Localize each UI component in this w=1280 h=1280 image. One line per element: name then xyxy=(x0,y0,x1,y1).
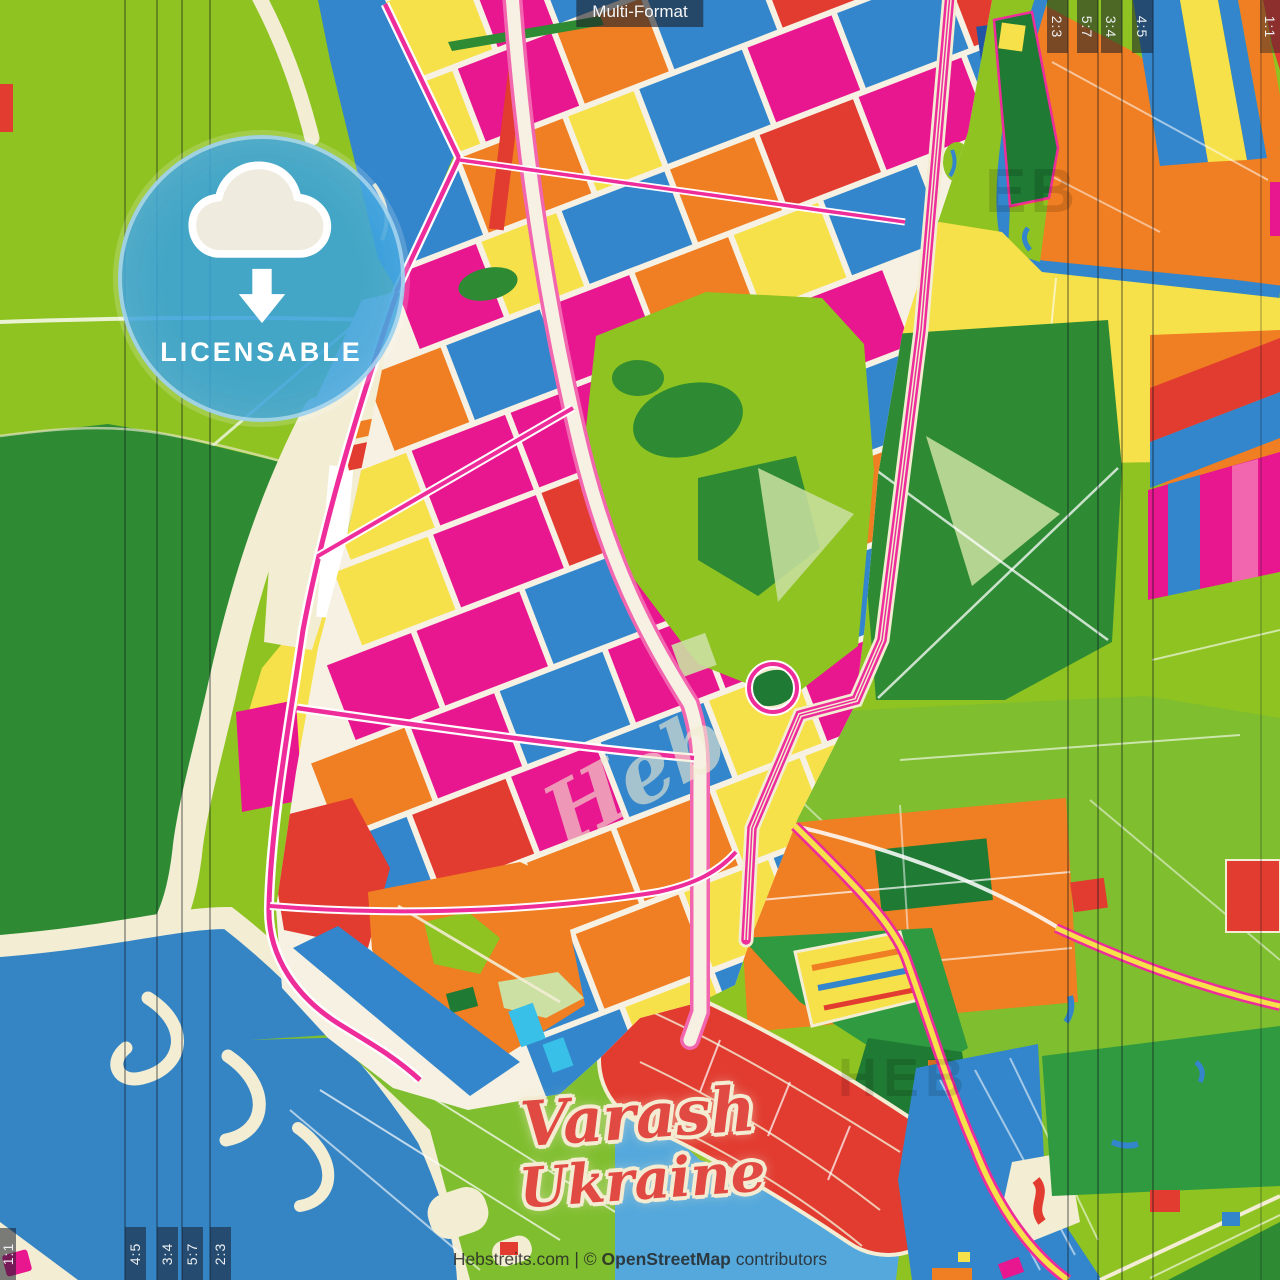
licensable-label: LICENSABLE xyxy=(160,337,363,368)
ratio-tab-label: 1:1 xyxy=(1262,15,1278,37)
ratio-tab-label: 3:4 xyxy=(1104,15,1120,37)
ratio-tab-label: 4:5 xyxy=(128,1242,144,1264)
ratio-tab-4-5-top: 4:5 xyxy=(1132,0,1153,53)
format-badge-label: Multi-Format xyxy=(592,2,687,21)
map-poster-preview: HebEBHEB Multi-Format 2:3 5:7 3:4 4:5 1:… xyxy=(0,0,1280,1280)
download-arrow-icon xyxy=(231,267,293,327)
format-badge: Multi-Format xyxy=(576,0,703,27)
ratio-tab-3-4-top: 3:4 xyxy=(1101,0,1122,53)
footer-site-text: Hebstreits.com | © xyxy=(453,1249,602,1269)
svg-text:HEB: HEB xyxy=(838,1048,970,1108)
svg-text:EB: EB xyxy=(985,157,1079,226)
map-title-country: Ukraine xyxy=(517,1143,767,1215)
ratio-tab-label: 2:3 xyxy=(1050,15,1066,37)
cloud-download-icon xyxy=(187,161,337,265)
licensable-badge: LICENSABLE xyxy=(118,135,405,422)
ratio-tab-3-4-bottom: 3:4 xyxy=(157,1227,178,1280)
footer-osm-text: OpenStreetMap xyxy=(602,1249,731,1269)
ratio-tab-1-1-left: 1:1 xyxy=(0,1228,16,1280)
ratio-tab-label: 3:4 xyxy=(160,1242,176,1264)
ratio-tab-label: 2:3 xyxy=(213,1242,229,1264)
map-title: Varash Ukraine xyxy=(513,1078,767,1216)
ratio-tab-5-7-bottom: 5:7 xyxy=(182,1227,203,1280)
footer-contributors-text: contributors xyxy=(731,1249,827,1269)
ratio-tab-2-3-top: 2:3 xyxy=(1047,0,1068,53)
ratio-tab-1-1-right: 1:1 xyxy=(1260,0,1280,53)
ratio-tab-5-7-top: 5:7 xyxy=(1077,0,1098,53)
ratio-tab-label: 4:5 xyxy=(1135,15,1151,37)
ratio-tab-label: 5:7 xyxy=(1080,15,1096,37)
ratio-tab-2-3-bottom: 2:3 xyxy=(210,1227,231,1280)
ratio-tab-label: 5:7 xyxy=(185,1242,201,1264)
ratio-tab-4-5-bottom: 4:5 xyxy=(125,1227,146,1280)
ratio-tab-label: 1:1 xyxy=(0,1243,16,1265)
